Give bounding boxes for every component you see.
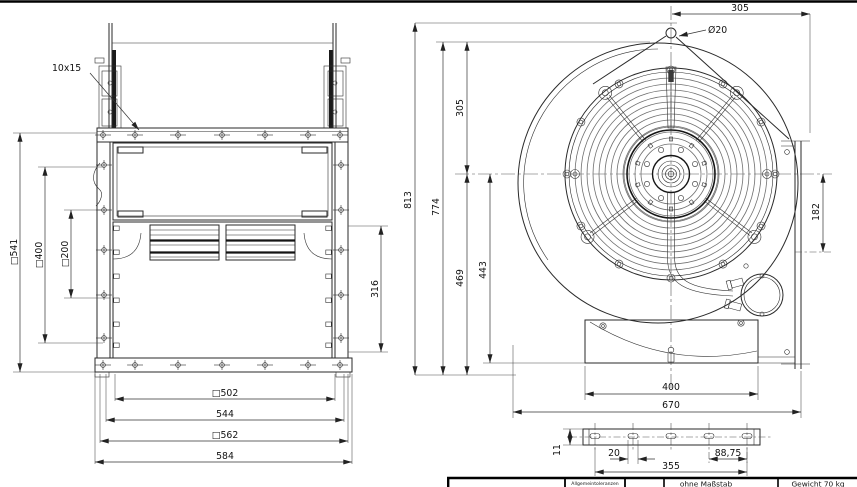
dim-20: 20 bbox=[608, 448, 620, 459]
dim-316: 316 bbox=[370, 280, 381, 298]
dim-670: 670 bbox=[662, 400, 680, 411]
dim-443: 443 bbox=[478, 261, 489, 279]
slot-callout: 10x15 bbox=[52, 63, 81, 74]
dim-400: 400 bbox=[662, 382, 680, 393]
dim-sq502: □502 bbox=[212, 388, 239, 399]
dim-sq200: □200 bbox=[60, 241, 71, 268]
dim-355: 355 bbox=[662, 461, 680, 472]
dim-dia20: Ø20 bbox=[708, 25, 727, 36]
dim-469: 469 bbox=[455, 269, 466, 287]
dim-182: 182 bbox=[811, 203, 822, 221]
dim-88-75: 88,75 bbox=[715, 448, 742, 459]
dim-sq562: □562 bbox=[212, 430, 239, 441]
title-block-weight: Gewicht 70 kg bbox=[791, 480, 844, 487]
title-block-scale: ohne Maßstab bbox=[680, 480, 733, 487]
dim-sq400: □400 bbox=[34, 242, 45, 269]
dim-305-left: 305 bbox=[455, 99, 466, 117]
fan-drawing: □541 □400 □200 10x15 316 □502 544 □562 5… bbox=[0, 0, 857, 487]
dim-813: 813 bbox=[403, 191, 414, 209]
dim-544: 544 bbox=[216, 409, 234, 420]
dim-774: 774 bbox=[431, 198, 442, 216]
technical-drawing-sheet: □541 □400 □200 10x15 316 □502 544 □562 5… bbox=[0, 0, 857, 487]
dim-584: 584 bbox=[216, 451, 234, 462]
title-block-tolerances: Allgemeintoleranzen bbox=[571, 481, 618, 487]
dim-11: 11 bbox=[552, 444, 563, 456]
dim-sq541: □541 bbox=[9, 239, 20, 266]
dim-305-top: 305 bbox=[731, 3, 749, 14]
